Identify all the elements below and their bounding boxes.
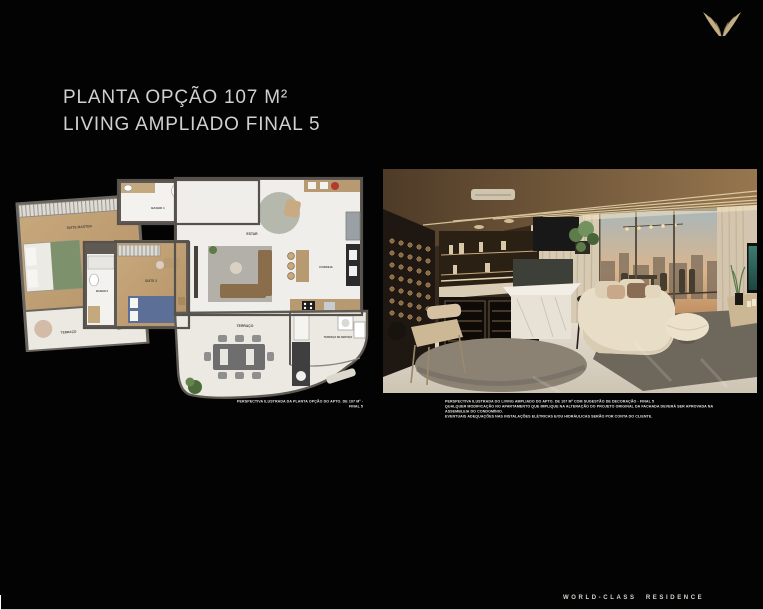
footer-tagline: WORLD-CLASS RESIDENCE [563,595,704,601]
brand-wings-logo [701,11,743,38]
floor-plan-image: SUITE MASTER TERRAÇO BANHO 1 [8,166,372,404]
room-label: BANHO 1 [151,206,165,210]
room-estar: ESTAR [175,178,362,315]
photo-caption: PERSPECTIVA ILUSTRADA DO LIVING AMPLIADO… [445,399,725,443]
floor-plan-caption: PERSPECTIVA ILUSTRADA DA PLANTA OPÇÃO DO… [228,399,363,421]
page-title-line1: PLANTA OPÇÃO 107 M² [63,84,320,111]
room-label: BANHO 2 [96,289,109,293]
room-banho-2: BANHO 2 [84,242,118,328]
room-label: ESTAR [246,232,258,236]
round-rug [415,338,587,392]
room-label: COZINHA [319,265,333,269]
page-title: PLANTA OPÇÃO 107 M² LIVING AMPLIADO FINA… [63,84,320,138]
living-room-photo [383,169,757,393]
room-label: TERRAÇO [237,324,254,328]
room-label: TERRAÇO DE SERVIÇO [324,336,352,339]
tv [747,243,757,293]
wings-icon [703,12,741,37]
sofa [578,279,675,355]
room-label: SUITE 2 [145,279,157,283]
photo-caption-line3: EVENTUAIS ADEQUAÇÕES NAS INSTALAÇÕES ELÉ… [445,414,725,419]
floor-plan-caption-text: PERSPECTIVA ILUSTRADA DA PLANTA OPÇÃO DO… [228,399,363,409]
page-left-edge [0,595,1,610]
page-title-line2: LIVING AMPLIADO FINAL 5 [63,111,320,138]
photo-caption-line2: QUALQUER MODIFICAÇÃO NO APARTAMENTO QUE … [445,404,725,414]
brochure-page: PLANTA OPÇÃO 107 M² LIVING AMPLIADO FINA… [0,0,763,610]
